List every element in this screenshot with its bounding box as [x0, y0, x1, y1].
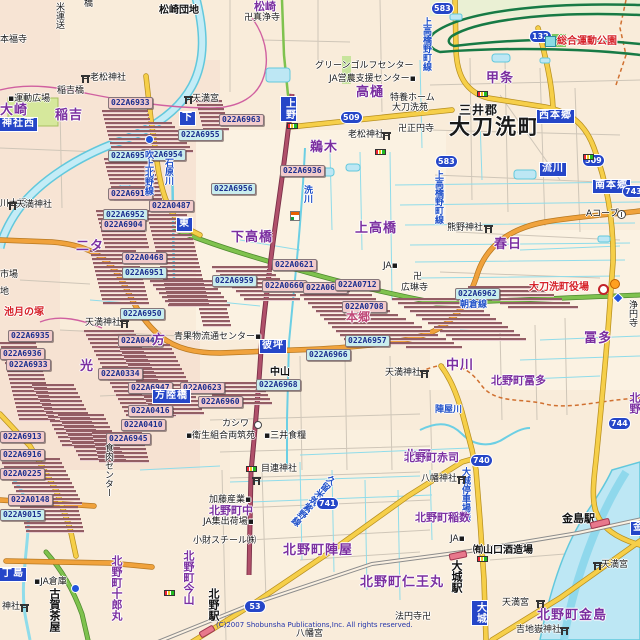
torii-icon — [120, 320, 129, 328]
route-shield: 509 — [341, 112, 362, 123]
map-label: 中川 — [446, 359, 474, 372]
school-icon — [254, 421, 262, 429]
conv-icon — [290, 211, 300, 221]
map-label: 北野町仁王丸 — [360, 576, 444, 589]
map-label: 天満神社 — [16, 201, 52, 210]
torii-icon — [20, 604, 29, 612]
route-shield: 583 — [436, 156, 457, 167]
map-label: 光 — [80, 360, 94, 373]
map-label: 鵜木 — [310, 141, 338, 154]
map-label: 大崎 — [0, 104, 28, 117]
photo-code-label: 022A6956 — [211, 183, 256, 195]
map-label: 本郷 — [346, 311, 370, 323]
map-label: 天満宮 — [601, 561, 628, 570]
map-label: Aコープ — [586, 210, 619, 219]
photo-code-label: 022A6916 — [0, 449, 45, 461]
intersection-label: 彼坪 — [260, 340, 286, 353]
signal-icon — [583, 154, 594, 160]
photo-code-label: 022A0621 — [272, 259, 317, 271]
map-label: 大刀洗町 — [449, 117, 541, 138]
photo-code-label: 022A6957 — [345, 335, 390, 347]
map-label: JA集出荷場▪ — [203, 518, 254, 527]
signal-icon — [164, 590, 175, 596]
map-label: 上高橋野町線 — [421, 17, 430, 71]
map-label: 神社 — [2, 603, 20, 612]
photo-code-label: 022A0660 — [262, 280, 307, 292]
map-label: 天満神社 — [385, 369, 421, 378]
map-label: 食肉センター — [103, 443, 112, 497]
map-label: 北野町冨多 — [491, 375, 546, 386]
map-label: 上高橋 — [355, 222, 397, 235]
photo-code-label: 022A6935 — [8, 330, 53, 342]
fire-icon — [610, 279, 620, 289]
map-label: ▪JA倉庫 — [34, 578, 67, 587]
map-label: 総合運動公園 — [557, 37, 617, 47]
map-label: 稲吉橋 — [57, 87, 84, 96]
map-label: 熊野神社 — [447, 224, 483, 233]
map-label: 池月の塚 — [4, 308, 44, 318]
photo-code-label: 022A6963 — [219, 114, 264, 126]
photo-code-label: 022A6933 — [108, 97, 153, 109]
map-label: 甲条 — [486, 72, 514, 85]
photo-code-label: 022A6904 — [101, 219, 146, 231]
map-label: 法円寺卍 — [395, 613, 431, 622]
torii-icon — [536, 600, 545, 608]
intersection-label: 大城 — [472, 601, 487, 625]
route-shield: 740 — [471, 455, 492, 466]
map-label: 下高橋 — [231, 231, 273, 244]
map-label: ▪衛生組合両筑苑 — [186, 432, 255, 441]
route-shield: 53 — [245, 601, 265, 612]
map-label: 地 — [0, 288, 9, 297]
leisure-icon — [545, 36, 556, 47]
map-label: 吹上北野線 — [143, 150, 152, 195]
photo-code-label: 022A0148 — [8, 494, 53, 506]
photo-code-label: 022A6951 — [122, 267, 167, 279]
bus-icon — [145, 135, 154, 144]
map-label: 春日 — [494, 238, 522, 251]
intersection-label: 神社西 — [0, 118, 37, 131]
torii-icon — [184, 96, 193, 104]
torii-icon — [593, 562, 602, 570]
photo-code-label: 022A6913 — [0, 431, 45, 443]
coop-icon — [617, 210, 626, 219]
map-label: 広琳寺 — [401, 284, 428, 293]
map-label: 大刀洗町役場 — [529, 283, 589, 293]
map-label: 北野 — [629, 392, 640, 414]
photo-code-label: 022A6955 — [178, 129, 223, 141]
map-label: 老松神社 — [348, 131, 384, 140]
photo-code-label: 022A6959 — [212, 275, 257, 287]
route-shield: 583 — [432, 3, 453, 14]
map-label: 卍真浄寺 — [244, 14, 280, 23]
torii-icon — [560, 627, 569, 635]
map-label: 北野町今山 — [183, 550, 194, 605]
map-label: 米運送 — [54, 2, 63, 29]
route-shield: 741 — [317, 498, 338, 509]
map-label: 洗川 — [302, 185, 311, 203]
bus-icon — [71, 584, 80, 593]
map-label: ㈲山口酒造場 — [473, 546, 533, 556]
torii-icon — [420, 370, 429, 378]
signal-icon — [246, 466, 257, 472]
map-label: 北野町稲数 — [415, 512, 470, 523]
photo-code-label: 022A6933 — [6, 359, 51, 371]
map-label: 市場 — [0, 271, 18, 280]
photo-code-label: 022A0416 — [128, 405, 173, 417]
intersection-label: 方陸橋 — [153, 390, 190, 403]
map-label: カシワ — [222, 420, 249, 429]
map-label: 冨多 — [584, 332, 612, 345]
map-label: 古賀茶屋 — [49, 588, 60, 632]
map-label: 松崎団地 — [159, 6, 199, 16]
map-canvas[interactable]: (C)2007 Shobunsha Publications,Inc. All … — [0, 0, 640, 640]
torii-icon — [382, 132, 391, 140]
torii-icon — [252, 477, 261, 485]
map-label: 大城駅 — [451, 560, 462, 593]
map-label: 青果物流通センター▪ — [174, 333, 261, 342]
photo-code-label: 022A6936 — [280, 165, 325, 177]
map-label: JA営農支援センター▪ — [329, 75, 416, 84]
map-label: 北野町金島 — [537, 609, 607, 622]
map-label: 朝倉線 — [460, 301, 487, 310]
map-label: 北野町中 — [209, 505, 253, 516]
photo-code-label: 022A6968 — [256, 379, 301, 391]
map-label: 松崎 — [254, 1, 276, 12]
map-label: 本福寺 — [0, 36, 27, 45]
signal-icon — [477, 91, 488, 97]
map-label: 卍正円寺 — [398, 125, 434, 134]
map-label: ▪三井食糧 — [264, 432, 306, 441]
intersection-label: 下 — [180, 112, 195, 125]
map-label: 方 — [152, 334, 166, 347]
map-label: 橋 — [84, 0, 93, 9]
map-label: 二タ — [76, 240, 104, 253]
map-label: 高樋 — [356, 86, 384, 99]
photo-code-label: 022A6960 — [198, 396, 243, 408]
signal-icon — [287, 123, 298, 129]
map-label: 陣屋川 — [435, 406, 462, 415]
intersection-label: 東 — [177, 218, 192, 231]
map-label: 北野駅 — [208, 588, 219, 621]
map-label: 八幡宮 — [296, 630, 323, 639]
map-label: 天満宮 — [502, 599, 529, 608]
signal-icon — [477, 556, 488, 562]
map-label: 目連神社 — [261, 465, 297, 474]
photo-code-label: 022A9015 — [0, 509, 45, 521]
intersection-label: 流川 — [540, 163, 566, 176]
torii-icon — [81, 75, 90, 83]
photo-code-label: 022A0225 — [0, 468, 45, 480]
map-label: 天満宮 — [192, 95, 219, 104]
map-label: 上高橋野町線 — [433, 170, 442, 224]
map-label: 稲吉 — [55, 109, 83, 122]
photo-code-label: 022A0334 — [98, 368, 143, 380]
photo-code-label: 022A6950 — [120, 308, 165, 320]
map-label: JA▪ — [383, 262, 398, 271]
map-label: 特養ホーム — [390, 94, 435, 103]
map-label: 天満神社 — [85, 319, 121, 328]
map-label: 卍 — [413, 273, 422, 282]
intersection-label: 上野 — [281, 97, 296, 121]
map-label: 吉地嶽神社 — [516, 626, 561, 635]
map-label: 石原川 — [163, 158, 172, 185]
map-label: 北野町赤司 — [404, 452, 459, 463]
intersection-label: 丁島 — [0, 568, 26, 581]
map-attribution: (C)2007 Shobunsha Publications,Inc. All … — [216, 622, 413, 629]
torii-icon — [484, 225, 493, 233]
photo-code-label: 022A0487 — [149, 200, 194, 212]
map-label: JA▪ — [450, 535, 465, 544]
photo-code-label: 022A6962 — [455, 288, 500, 300]
photo-code-label: 022A0410 — [121, 419, 166, 431]
map-label: 小財スチール㈱ — [193, 537, 256, 546]
map-label: 老松神社 — [90, 74, 126, 83]
photo-code-label: 022A0712 — [335, 279, 380, 291]
route-shield: 744 — [609, 418, 630, 429]
photo-code-label: 022A0468 — [122, 252, 167, 264]
torii-icon — [8, 202, 17, 210]
map-label: 大刀洗苑 — [392, 104, 428, 113]
map-label: 八幡神社 — [421, 475, 457, 484]
map-label: 北野町十郎丸 — [111, 555, 122, 621]
signal-icon — [375, 149, 386, 155]
photo-code-label: 022A6966 — [306, 349, 351, 361]
map-label: 北野町陣屋 — [283, 544, 353, 557]
route-shield: 743 — [623, 186, 640, 197]
torii-icon — [457, 476, 466, 484]
map-label: グリーンゴルフセンター — [315, 62, 414, 71]
intersection-label: 西本郷 — [537, 110, 574, 123]
intersection-label: 金 — [631, 522, 640, 535]
office-icon — [598, 284, 609, 295]
map-label: 中山 — [270, 368, 290, 378]
map-label: 浄円寺 — [627, 300, 636, 327]
